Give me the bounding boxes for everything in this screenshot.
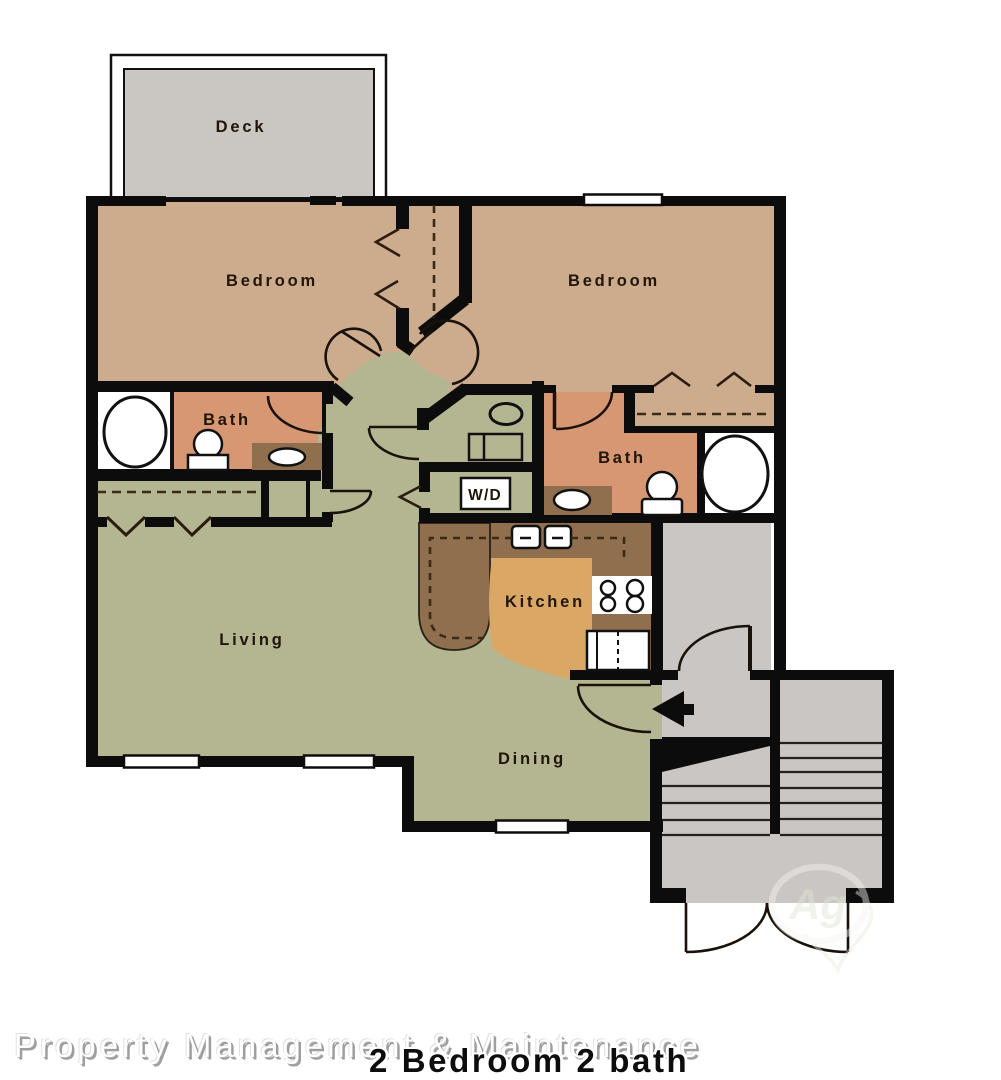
svg-text:Bedroom: Bedroom (568, 272, 660, 290)
svg-text:Deck: Deck (216, 118, 267, 136)
svg-text:Dining: Dining (498, 750, 566, 768)
svg-text:W/D: W/D (468, 487, 502, 504)
svg-text:Bedroom: Bedroom (226, 272, 318, 290)
svg-text:Living: Living (219, 631, 284, 649)
svg-text:Kitchen: Kitchen (505, 593, 585, 611)
svg-text:Bath: Bath (203, 411, 251, 429)
svg-text:Bath: Bath (598, 449, 646, 467)
svg-text:Ag: Ag (788, 881, 846, 929)
